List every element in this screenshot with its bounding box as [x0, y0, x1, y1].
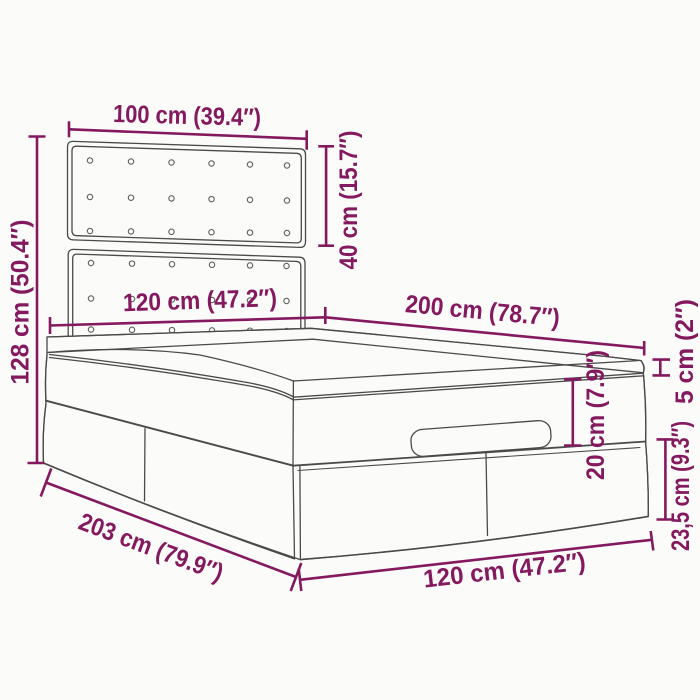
svg-text:40 cm (15.7″): 40 cm (15.7″) — [335, 131, 363, 270]
svg-text:20 cm (7.9″): 20 cm (7.9″) — [582, 350, 610, 480]
svg-text:23,5 cm (9.3″): 23,5 cm (9.3″) — [667, 421, 695, 551]
svg-text:100 cm (39.4″): 100 cm (39.4″) — [113, 100, 262, 132]
svg-text:5 cm (2″): 5 cm (2″) — [671, 299, 699, 404]
svg-text:120 cm (47.2″): 120 cm (47.2″) — [123, 284, 278, 317]
svg-text:128 cm (50.4″): 128 cm (50.4″) — [7, 220, 35, 385]
